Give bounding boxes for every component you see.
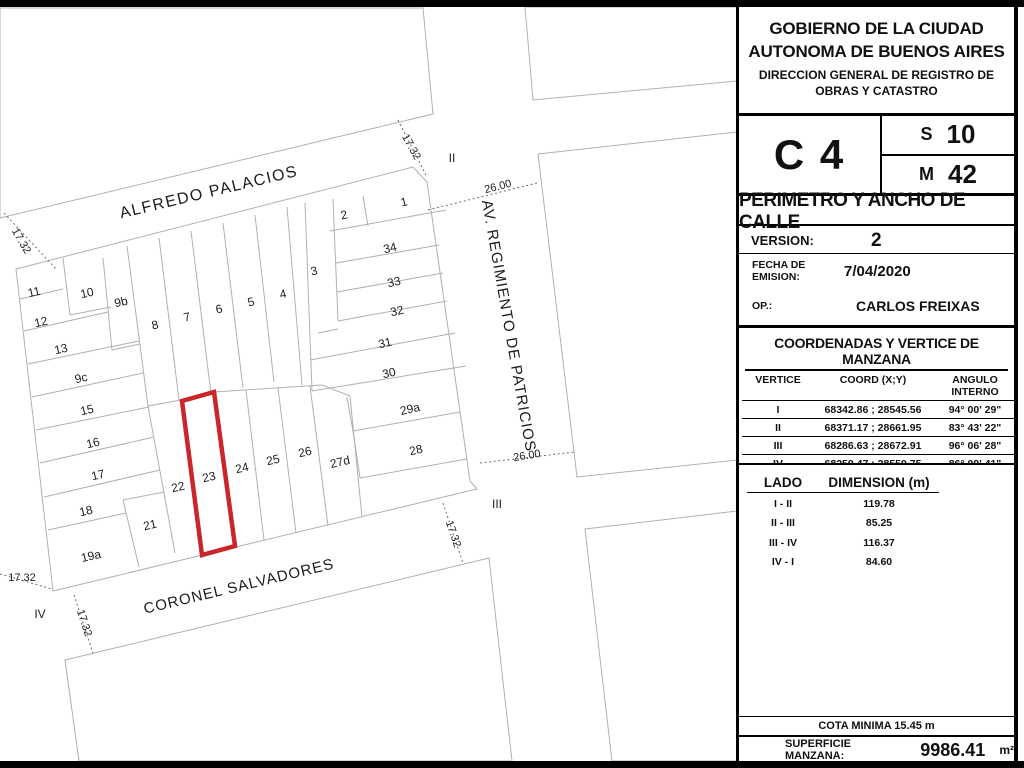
fecha-label: FECHA DE EMISION:	[739, 259, 844, 283]
manzana-value: 42	[948, 159, 977, 190]
title-block-panel: GOBIERNO DE LA CIUDAD AUTONOMA DE BUENOS…	[736, 6, 1018, 761]
lados-table: LADO DIMENSION (m) I - II 119.78 II - II…	[747, 475, 1014, 571]
fecha-value: 7/04/2020	[844, 263, 911, 280]
manzana-cell: M 42	[882, 156, 1014, 194]
dimension-header: DIMENSION (m)	[819, 475, 939, 493]
version-label: VERSION:	[739, 233, 871, 248]
page-border-bottom	[0, 761, 1024, 768]
seccion-manzana-cells: S 10 M 42	[882, 116, 1014, 193]
seccion-cell: S 10	[882, 116, 1014, 156]
cota-minima-row: COTA MINIMA 15.45 m	[739, 717, 1014, 737]
dim-label-1732-bottomleft: 17.32	[74, 608, 94, 638]
vertex-marker-iii: III	[492, 497, 502, 511]
vertex-marker-iv: IV	[34, 607, 45, 621]
dim-label-1732-left: 17.32	[8, 572, 36, 584]
superficie-value: 9986.41	[908, 740, 985, 761]
dim-label-2600-top: 26.00	[483, 178, 513, 196]
dept-name-line1: DIRECCION GENERAL DE REGISTRO DE	[739, 68, 1014, 82]
circunscripcion-cell: C 4	[739, 116, 882, 193]
sheet-title: PERIMETRO Y ANCHO DE CALLE	[739, 199, 1014, 226]
lado-header: LADO	[747, 475, 819, 493]
col-vertice: VERTICE	[742, 371, 814, 401]
street-label-av-regimiento-patricios: AV. REGIMIENTO DE PATRICIOS	[478, 199, 539, 453]
manzana-label: M	[919, 164, 934, 185]
version-row: VERSION: 2	[739, 228, 1014, 254]
cadastral-sheet: { "sidebar": { "org_line1": "GOBIERNO DE…	[0, 0, 1024, 768]
op-value: CARLOS FREIXAS	[844, 298, 980, 314]
superficie-unit: m²	[985, 743, 1014, 757]
seccion-value: 10	[947, 119, 976, 150]
lados-section: LADO DIMENSION (m) I - II 119.78 II - II…	[739, 465, 1014, 717]
coordenadas-row-i: I 68342.86 ; 28545.56 94° 00' 29"	[742, 401, 1011, 419]
vertex-marker-ii: II	[449, 151, 456, 165]
page-border-top	[0, 0, 1024, 7]
agency-header: GOBIERNO DE LA CIUDAD AUTONOMA DE BUENOS…	[739, 6, 1014, 116]
coordenadas-row-ii: II 68371.17 ; 28661.95 83° 43' 22"	[742, 419, 1011, 437]
fecha-emision-row: FECHA DE EMISION: 7/04/2020	[739, 255, 1014, 287]
col-angulo: ANGULO INTERNO	[932, 371, 1018, 401]
superficie-row: SUPERFICIE MANZANA: 9986.41 m²	[739, 739, 1014, 761]
operador-row: OP.: CARLOS FREIXAS	[739, 287, 1014, 328]
coordenadas-header-row: VERTICE COORD (X;Y) ANGULO INTERNO	[742, 371, 1011, 401]
seccion-label: S	[921, 124, 933, 145]
op-label: OP.:	[739, 300, 844, 312]
org-name-line2: AUTONOMA DE BUENOS AIRES	[739, 42, 1014, 62]
dim-label-2600-mid: 26.00	[512, 448, 541, 464]
circ-seccion-manzana-row: C 4 S 10 M 42	[739, 116, 1014, 196]
col-coord: COORD (X;Y)	[814, 371, 932, 401]
dim-label-1732-top: 17.32	[399, 132, 423, 162]
version-value: 2	[871, 230, 882, 252]
cadastral-map: ALFREDO PALACIOS CORONEL SALVADORES AV. …	[0, 0, 737, 768]
coordenadas-row-iii: III 68286.63 ; 28672.91 96° 06' 28"	[742, 437, 1011, 455]
dim-label-1732-right: 17.32	[443, 519, 463, 549]
superficie-label: SUPERFICIE MANZANA:	[739, 738, 908, 762]
coordenadas-section: COORDENADAS Y VERTICE DE MANZANA VERTICE…	[739, 331, 1014, 465]
dept-name-line2: OBRAS Y CATASTRO	[739, 84, 1014, 98]
org-name-line1: GOBIERNO DE LA CIUDAD	[739, 19, 1014, 39]
coordenadas-title: COORDENADAS Y VERTICE DE MANZANA	[739, 335, 1014, 367]
